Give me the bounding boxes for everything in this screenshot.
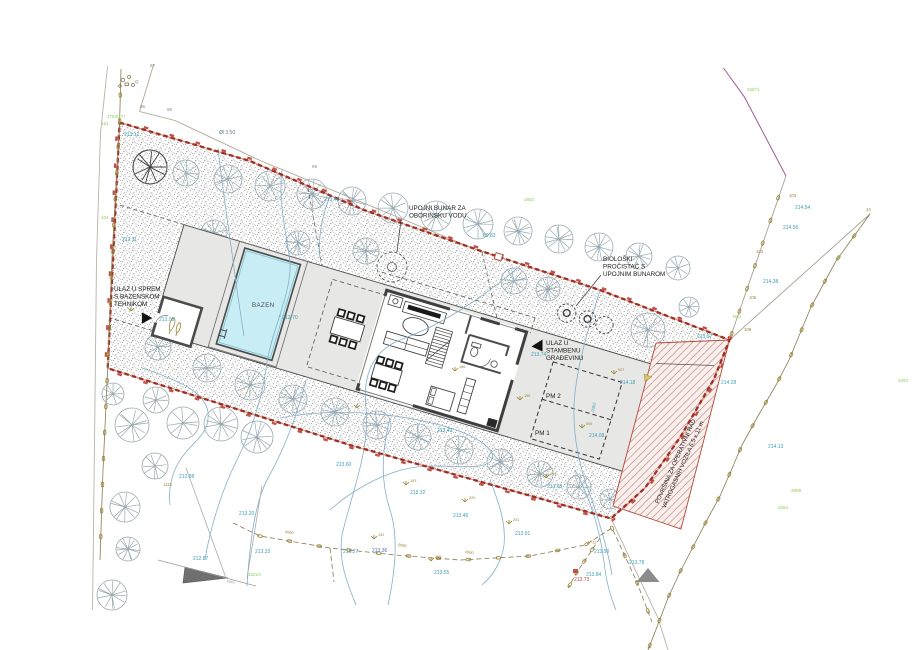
svg-text:213.74: 213.74: [531, 352, 547, 358]
svg-text:213.60: 213.60: [336, 462, 352, 468]
svg-text:007: 007: [618, 368, 624, 372]
svg-text:006: 006: [586, 422, 592, 426]
svg-text:213.97: 213.97: [697, 334, 713, 340]
svg-text:213.78: 213.78: [629, 560, 645, 566]
svg-text:2808: 2808: [791, 488, 802, 493]
svg-text:213.11: 213.11: [122, 237, 137, 243]
svg-text:213.20: 213.20: [239, 511, 255, 517]
svg-text:TEHNIKOM: TEHNIKOM: [114, 301, 147, 308]
svg-text:213.46: 213.46: [453, 513, 469, 519]
svg-text:S BAZENSKOM: S BAZENSKOM: [114, 294, 160, 301]
svg-text:018: 018: [550, 472, 556, 476]
svg-text:32871: 32871: [747, 87, 760, 92]
svg-text:213.43: 213.43: [437, 428, 453, 434]
svg-text:103: 103: [789, 193, 797, 198]
svg-text:109: 109: [744, 327, 752, 332]
svg-text:213.08: 213.08: [159, 317, 175, 323]
svg-text:1793/177: 1793/177: [107, 114, 126, 119]
svg-text:161: 161: [101, 121, 109, 126]
svg-text:214.13: 214.13: [768, 444, 784, 450]
svg-text:99: 99: [312, 164, 318, 169]
svg-text:214.18: 214.18: [620, 380, 636, 386]
svg-text:156: 156: [524, 394, 530, 398]
svg-text:214.56: 214.56: [783, 225, 799, 231]
svg-text:ULAZ U: ULAZ U: [546, 340, 569, 347]
svg-text:Øl 3.50: Øl 3.50: [219, 130, 235, 136]
svg-text:PM 2: PM 2: [546, 393, 561, 400]
svg-text:212.88: 212.88: [179, 474, 195, 480]
svg-text:GRAĐEVINU: GRAĐEVINU: [546, 355, 584, 362]
svg-text:2264: 2264: [778, 505, 789, 510]
svg-text:214.08: 214.08: [589, 433, 605, 439]
svg-text:2802: 2802: [524, 197, 535, 202]
svg-text:214.54: 214.54: [795, 205, 811, 211]
svg-text:BAZEN: BAZEN: [252, 302, 275, 309]
svg-text:213.91: 213.91: [515, 531, 531, 537]
svg-text:89.83: 89.83: [483, 233, 496, 239]
svg-text:213.27: 213.27: [343, 549, 359, 555]
svg-text:2063: 2063: [898, 378, 909, 383]
svg-text:BIOLOŠKI: BIOLOŠKI: [603, 254, 633, 263]
svg-text:214.28: 214.28: [721, 380, 737, 386]
svg-text:N61: N61: [733, 314, 742, 319]
svg-text:OBORINSKU VODU: OBORINSKU VODU: [409, 213, 467, 220]
svg-text:214.38: 214.38: [763, 279, 779, 285]
svg-text:PROČISTAČ S: PROČISTAČ S: [603, 262, 645, 271]
svg-text:213.73: 213.73: [574, 577, 590, 583]
svg-text:213.36: 213.36: [372, 548, 388, 554]
svg-text:213.90: 213.90: [594, 549, 610, 555]
svg-text:106: 106: [749, 295, 757, 300]
svg-text:97: 97: [150, 63, 156, 68]
svg-text:186: 186: [459, 365, 465, 369]
svg-text:UPOJNI BUNAR ZA: UPOJNI BUNAR ZA: [409, 205, 466, 212]
svg-text:1113: 1113: [163, 482, 173, 487]
svg-text:UPOJNIM BUNAROM: UPOJNIM BUNAROM: [603, 271, 665, 278]
svg-text:213.32: 213.32: [410, 490, 426, 496]
svg-text:193: 193: [410, 479, 416, 483]
svg-text:213.33: 213.33: [255, 549, 271, 555]
svg-text:201: 201: [513, 518, 519, 522]
svg-text:212.87: 212.87: [193, 556, 209, 562]
svg-text:102: 102: [756, 249, 764, 254]
svg-text:104: 104: [101, 215, 109, 220]
svg-text:213.68: 213.68: [547, 484, 563, 490]
svg-text:213.46: 213.46: [324, 197, 340, 203]
svg-text:1521/4: 1521/4: [248, 572, 261, 577]
svg-text:PM 1: PM 1: [535, 430, 550, 437]
svg-text:98: 98: [167, 107, 173, 112]
svg-text:205: 205: [435, 555, 441, 559]
svg-text:* 213.70: * 213.70: [279, 315, 298, 321]
svg-text:ULAZ U SPREM: ULAZ U SPREM: [114, 286, 161, 293]
svg-text:020: 020: [469, 496, 475, 500]
svg-text:14: 14: [866, 207, 871, 212]
svg-text:192: 192: [378, 533, 384, 537]
svg-text:STAMBENU: STAMBENU: [546, 348, 581, 355]
svg-text:213.55: 213.55: [434, 570, 450, 576]
svg-text:96: 96: [140, 104, 146, 109]
svg-text:Q: Q: [135, 79, 139, 84]
svg-text:213.12: 213.12: [124, 132, 140, 138]
